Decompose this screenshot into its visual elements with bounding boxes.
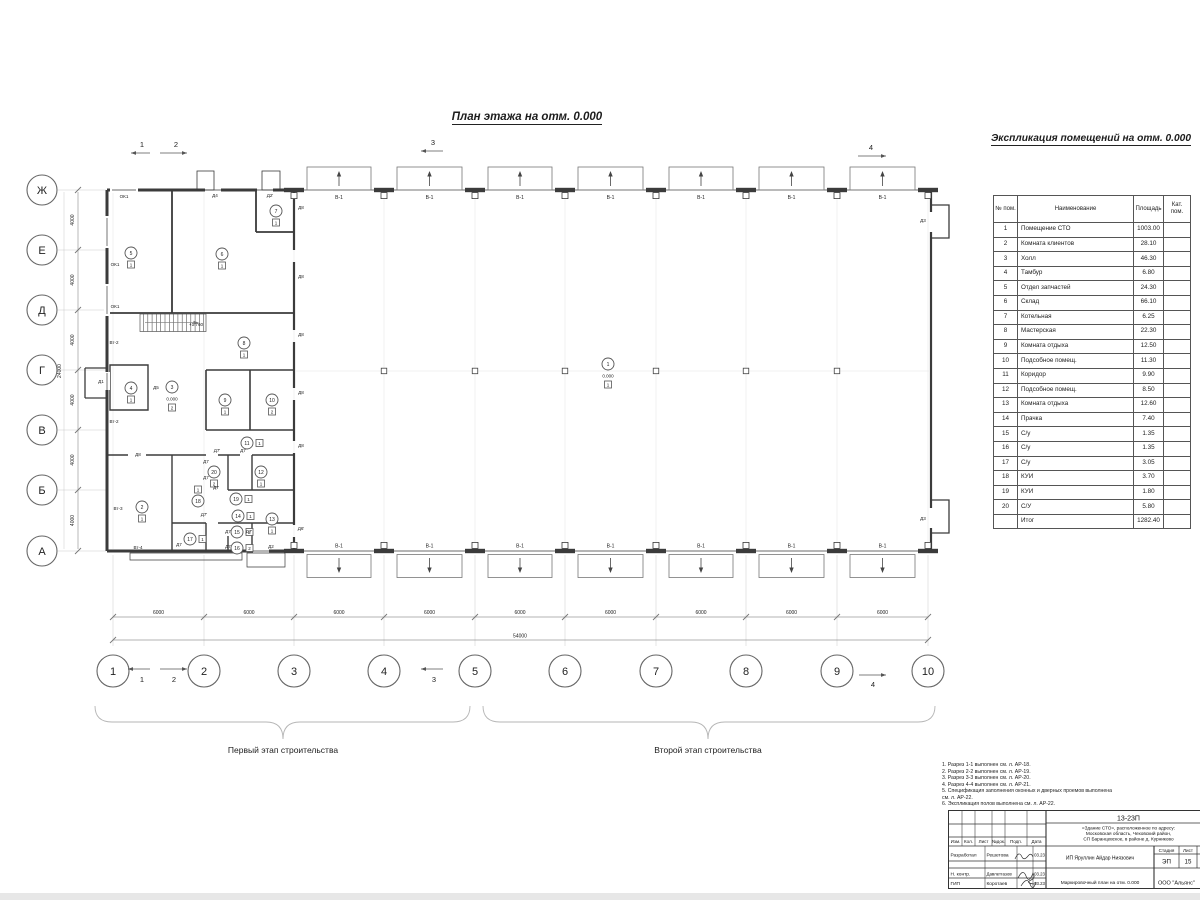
gate-arrowhead [699,171,703,177]
column-mark [743,193,749,199]
table-row: 20С/У5.80 [994,500,1191,515]
section-mark-arrowhead [421,667,426,671]
section-mark-number: 3 [432,675,436,684]
cell-number: 12 [994,383,1018,398]
table-row: 14Прачка7.40 [994,412,1191,427]
room-number: 12 [258,470,264,476]
gip-role: ГИП [951,881,961,887]
cell-category [1164,354,1191,369]
section-mark-number: 1 [140,140,144,149]
cell-name: Помещение СТО [1018,223,1134,238]
section-marks: 12341234 [128,138,886,689]
pier-top [918,188,938,192]
opening-label: Д8 [298,443,304,448]
right-porches [931,205,949,533]
column-mark [653,542,659,548]
opening-label: Д2 [268,544,274,549]
cell-name: Подсобное помещ. [1018,354,1134,369]
tb-col-list: Лист [979,839,989,844]
table-row: 6Склад66.10 [994,295,1191,310]
opening-label: Д8 [298,205,304,210]
cell-number: 20 [994,500,1018,515]
room-number: 9 [224,398,227,404]
dim-bay-value: 6000 [333,610,344,616]
column-mark [925,542,931,548]
opening-label: Д1 [98,379,104,384]
gate-arrowhead [518,568,522,574]
opening-label: Д8 [298,390,304,395]
room-number: 8 [243,341,246,347]
table-row: 15С/у1.35 [994,427,1191,442]
hall-column [381,368,387,374]
dim-bay-value: 6000 [695,610,706,616]
doc-number: 13-23П [1117,816,1140,823]
cell-number: 3 [994,252,1018,267]
notes-block: 1. Разрез 1-1 выполнен см. л. АР-18.2. Р… [942,762,1118,808]
pier-bottom [736,549,756,553]
note-line: 6. Экспликация полов выполнена см. л. АР… [942,801,1118,808]
cell-area: 5.80 [1134,500,1164,515]
cell-name: Мастерская [1018,325,1134,340]
cell-category [1164,412,1191,427]
dim-total-value: 54000 [513,634,527,640]
cell-name: Подсобное помещ. [1018,383,1134,398]
gate-label: В-1 [788,544,796,550]
cell-area: 11.30 [1134,354,1164,369]
table-row: 16С/у1.35 [994,441,1191,456]
table-row: 8Мастерская22.30 [994,325,1191,340]
table-row: 1Помещение СТО1003.00 [994,223,1191,238]
axis-letter: Ж [37,185,47,197]
cell-number: 4 [994,266,1018,281]
gate-label: В-1 [335,195,343,201]
section-mark-arrowhead [881,673,886,677]
cell-area: 46.30 [1134,252,1164,267]
column-mark [291,193,297,199]
section-mark-number: 2 [172,675,176,684]
developer-role: Разработал [951,853,977,859]
opening-label: Д3 [920,218,926,223]
cell-number: 15 [994,427,1018,442]
column-mark [834,193,840,199]
cell-number: 18 [994,471,1018,486]
opening-label: Д7 [225,544,231,549]
developer-date: 03.23 [1034,853,1045,858]
plan-title: План этажа на отм. 0.000 [377,111,677,123]
opening-label: ОК1 [111,262,120,267]
cell-name: Прачка [1018,412,1134,427]
opening-label: Д5 [153,385,159,390]
cell-number: 2 [994,237,1018,252]
cell-number [994,514,1018,529]
gate-arrowhead [337,568,341,574]
column-mark [472,193,478,199]
stage-header: Стадия [1159,848,1175,853]
room-number: 10 [269,398,275,404]
dim-bay-value: 6000 [243,610,254,616]
project-address-line3: СП Баранцевское, в районе д. Курниково [1083,836,1174,842]
cell-category [1164,252,1191,267]
axis-letter: Г [39,365,45,377]
gate-arrowhead [880,568,884,574]
table-row: 3Холл46.30 [994,252,1191,267]
cell-area: 12.50 [1134,339,1164,354]
room-number: 7 [275,209,278,215]
tb-col-izm: Изм. [951,839,961,844]
dim-bay-value: 6000 [605,610,616,616]
table-row: 9Комната отдыха12.50 [994,339,1191,354]
column-mark [562,193,568,199]
project-address-line2: Московская область, Чеховский район, [1086,830,1171,836]
section-mark-arrowhead [182,151,187,155]
tb-col-podp: Подп. [1010,839,1022,844]
gate-arrowhead [518,171,522,177]
cell-category [1164,281,1191,296]
brace-first-stage [95,706,470,739]
cell-name: Отдел запчастей [1018,281,1134,296]
dim-bay-value: 6000 [514,610,525,616]
gate-arrowhead [427,171,431,177]
bottom-platform [130,553,285,567]
opening-label: Д7 [203,459,209,464]
cell-number: 7 [994,310,1018,325]
cell-area: 1282.40 [1134,514,1164,529]
axis-letter: В [38,425,45,437]
gip-date: 03.23 [1034,881,1045,886]
dim-bay-value: 6000 [153,610,164,616]
cell-number: 11 [994,368,1018,383]
cell-number: 8 [994,325,1018,340]
cell-name: Склад [1018,295,1134,310]
opening-label: Д7 [203,475,209,480]
dim-bay-value: 6000 [786,610,797,616]
gate-arrowhead [427,568,431,574]
hall-column [472,368,478,374]
section-mark-number: 4 [869,143,873,152]
room-number: 20 [211,470,217,476]
cell-area: 1.80 [1134,485,1164,500]
cell-category [1164,295,1191,310]
section-mark-number: 4 [871,680,875,689]
hall-column [743,368,749,374]
table-row: 19КУИ1.80 [994,485,1191,500]
total-row: Итог1282.40 [994,514,1191,529]
cell-number: 5 [994,281,1018,296]
section-mark-number: 2 [174,140,178,149]
pier-bottom [646,549,666,553]
wall-piers-and-columns [284,188,938,553]
client-name: ИП Яруллин Айдар Ниязович [1066,855,1135,862]
cell-name: Итог [1018,514,1134,529]
pier-top [736,188,756,192]
page-edge-strip [0,893,1200,900]
title-block: 13-23П «Здание СТО», расположенное по ад… [948,810,1200,889]
opening-label: Д7' [246,529,253,534]
col-room-category: Кат. пом. [1164,196,1191,223]
table-row: 18КУИ3.70 [994,471,1191,486]
cell-number: 13 [994,398,1018,413]
cell-area: 22.30 [1134,325,1164,340]
opening-label: Д4 [212,193,218,198]
door-window-labels: ОК1ОК1ОК1Д4Д2'Д8Д8Д8Д8Д8Д6'Д1Д5Д3Д3Вт-2В… [98,193,926,550]
cell-area: 28.10 [1134,237,1164,252]
opening-label: ОК1 [111,304,120,309]
gate-label: В-1 [607,544,615,550]
cell-name: КУИ [1018,485,1134,500]
section-mark-arrowhead [421,149,426,153]
pier-bottom [918,549,938,553]
cell-area: 1003.00 [1134,223,1164,238]
col-room-area: Площадь [1134,196,1164,223]
gate-label: В-1 [426,195,434,201]
table-row: 10Подсобное помещ.11.30 [994,354,1191,369]
cell-area: 24.30 [1134,281,1164,296]
opening-label: Д7' [214,448,221,453]
room-markers: 10.00012130.0002415161718191102111121131… [125,205,614,554]
column-mark [834,542,840,548]
axis-number: 3 [291,666,297,678]
ncontrol-date: 03.23 [1034,872,1045,877]
dim-row-value: 4000 [70,214,76,225]
axis-number: 8 [743,666,749,678]
opening-label: Д6' [298,526,305,531]
gate-label: В-1 [879,195,887,201]
second-stage-label: Второй этап строительства [598,745,818,755]
dim-bay-value: 6000 [424,610,435,616]
section-mark-arrowhead [881,154,886,158]
pier-bottom [465,549,485,553]
opening-label: Д3 [920,516,926,521]
opening-label: Вт-2 [109,419,119,424]
gate-label: В-1 [516,195,524,201]
cell-name: Комната отдыха [1018,398,1134,413]
axis-number: 5 [472,666,478,678]
column-mark [743,542,749,548]
pier-top [465,188,485,192]
axis-letter: А [38,546,46,558]
section-mark-number: 1 [140,675,144,684]
section-mark-arrowhead [182,667,187,671]
cell-name: С/у [1018,427,1134,442]
room-number: 18 [195,499,201,505]
gip-name: Коротаев [987,881,1008,887]
cell-name: Тамбур [1018,266,1134,281]
sheet-value: 15 [1185,859,1192,866]
cell-category [1164,266,1191,281]
cell-category [1164,310,1191,325]
company-name: ООО "Альянс" [1158,881,1195,887]
cell-category [1164,383,1191,398]
drawing-sheet: { "plan_title": "План этажа на отм. 0.00… [0,0,1200,900]
cell-category [1164,485,1191,500]
opening-label: Д7' [201,512,208,517]
table-row: 13Комната отдыха12.60 [994,398,1191,413]
column-mark [291,542,297,548]
cell-area: 3.70 [1134,471,1164,486]
dim-row-value: 4000 [70,394,76,405]
cell-category [1164,500,1191,515]
cell-name: Холл [1018,252,1134,267]
cell-name: Комната клиентов [1018,237,1134,252]
cell-name: КУИ [1018,471,1134,486]
opening-label: Д7 [176,542,182,547]
room-number: 15 [234,530,240,536]
hall-column [834,368,840,374]
dim-row-value: 4000 [70,334,76,345]
project-address-line1: «Здание СТО», расположенное по адресу: [1082,826,1175,831]
axis-number: 9 [834,666,840,678]
gate-label: В-1 [426,544,434,550]
gate-arrowhead [789,171,793,177]
room-number: 1 [607,362,610,368]
opening-label: Д7 [213,485,219,490]
room-number: 2 [141,505,144,511]
cell-number: 6 [994,295,1018,310]
cell-area: 66.10 [1134,295,1164,310]
cell-category [1164,441,1191,456]
cell-area: 3.05 [1134,456,1164,471]
gate-arrowhead [789,568,793,574]
cell-category [1164,368,1191,383]
room-number: 11 [244,441,249,447]
table-row: 11Коридор9.90 [994,368,1191,383]
gate-arrowhead [608,171,612,177]
room-number: 3 [171,385,174,391]
cell-category [1164,456,1191,471]
dim-total-left-value: 24000 [57,364,63,378]
opening-label: ОК1 [120,194,129,199]
explication-header-row: № пом. Наименование Площадь Кат. пом. [994,196,1191,223]
cell-name: Коридор [1018,368,1134,383]
note-line: 5. Спецификация заполнения оконных и две… [942,788,1118,801]
opening-label: Д8 [135,452,141,457]
opening-label: Д8 [298,274,304,279]
tb-col-kol: Кол. [964,839,973,844]
column-mark [381,542,387,548]
cell-area: 12.60 [1134,398,1164,413]
axis-number: 10 [922,666,934,678]
brace-second-stage [483,706,935,739]
cell-category [1164,471,1191,486]
cell-category [1164,223,1191,238]
opening-label: Вт-3 [113,506,123,511]
stage-braces [95,706,935,739]
column-mark [472,542,478,548]
ncontrol-name: Давлетгазов [987,872,1013,877]
pier-bottom [284,549,304,553]
column-mark [562,542,568,548]
table-row: 5Отдел запчастей24.30 [994,281,1191,296]
cell-area: 1.35 [1134,441,1164,456]
cell-category [1164,427,1191,442]
gate-label: В-1 [697,195,705,201]
pier-bottom [827,549,847,553]
cell-number: 10 [994,354,1018,369]
level-mark: 0.000 [602,374,614,379]
sheet-header: Лист [1183,848,1194,853]
pier-top [646,188,666,192]
column-mark [653,193,659,199]
cell-number: 19 [994,485,1018,500]
ncontrol-role: Н. контр. [951,872,971,878]
explication-table: № пом. Наименование Площадь Кат. пом. 1П… [993,195,1191,529]
pier-bottom [555,549,575,553]
cell-area: 8.50 [1134,383,1164,398]
room-number: 5 [130,251,133,257]
axis-bubbles: 12345678910ЖЕДГВБА [27,175,944,687]
tb-col-ndoc: №док. [992,839,1005,844]
gate-label: В-1 [516,544,524,550]
cell-category [1164,398,1191,413]
stage-value: ЭП [1162,859,1171,866]
room-number: 16 [234,546,240,552]
signature-developer [1015,854,1033,859]
room-number: 13 [269,517,275,523]
section-mark-arrowhead [131,151,136,155]
gate-arrowhead [337,171,341,177]
gate-arrowhead [699,568,703,574]
gate-label: В-1 [607,195,615,201]
pier-top [827,188,847,192]
pier-top [374,188,394,192]
axis-letter: Б [38,485,45,497]
cell-category [1164,339,1191,354]
level-mark: 0.000 [166,397,178,402]
opening-label: Д8 [298,332,304,337]
building-walls [85,171,949,567]
room-number: 17 [187,537,193,543]
room-number: 19 [233,497,239,503]
opening-label: Вт-4 [133,545,143,550]
table-row: 4Тамбур6.80 [994,266,1191,281]
pier-bottom [374,549,394,553]
table-row: 7Котельная6.25 [994,310,1191,325]
table-row: 12Подсобное помещ.8.50 [994,383,1191,398]
col-room-name: Наименование [1018,196,1134,223]
gate-label: В-1 [697,544,705,550]
title-block-grid: 13-23П «Здание СТО», расположенное по ад… [949,811,1200,888]
axis-number: 4 [381,666,387,678]
cell-name: С/у [1018,456,1134,471]
hall-column [653,368,659,374]
cell-number: 16 [994,441,1018,456]
table-row: 2Комната клиентов28.10 [994,237,1191,252]
hall-column [562,368,568,374]
explication-title: Экспликация помещений на отм. 0.000 [986,133,1196,144]
col-room-number: № пом. [994,196,1018,223]
cell-area: 6.25 [1134,310,1164,325]
axis-number: 1 [110,666,116,678]
axis-number: 2 [201,666,207,678]
gate-arrowhead [608,568,612,574]
column-mark [381,193,387,199]
cell-area: 7.40 [1134,412,1164,427]
cell-area: 6.80 [1134,266,1164,281]
axis-number: 6 [562,666,568,678]
cell-name: С/У [1018,500,1134,515]
developer-name: Решетова [987,853,1009,859]
room-number: 4 [130,386,133,392]
gates: В-1В-1В-1В-1В-1В-1В-1В-1В-1В-1В-1В-1В-1В… [307,167,915,578]
column-mark [925,193,931,199]
cell-number: 9 [994,339,1018,354]
opening-label: Д2' [267,193,274,198]
cell-area: 1.35 [1134,427,1164,442]
cell-number: 17 [994,456,1018,471]
opening-label: Д7 [225,529,231,534]
cell-number: 14 [994,412,1018,427]
gate-arrowhead [880,171,884,177]
